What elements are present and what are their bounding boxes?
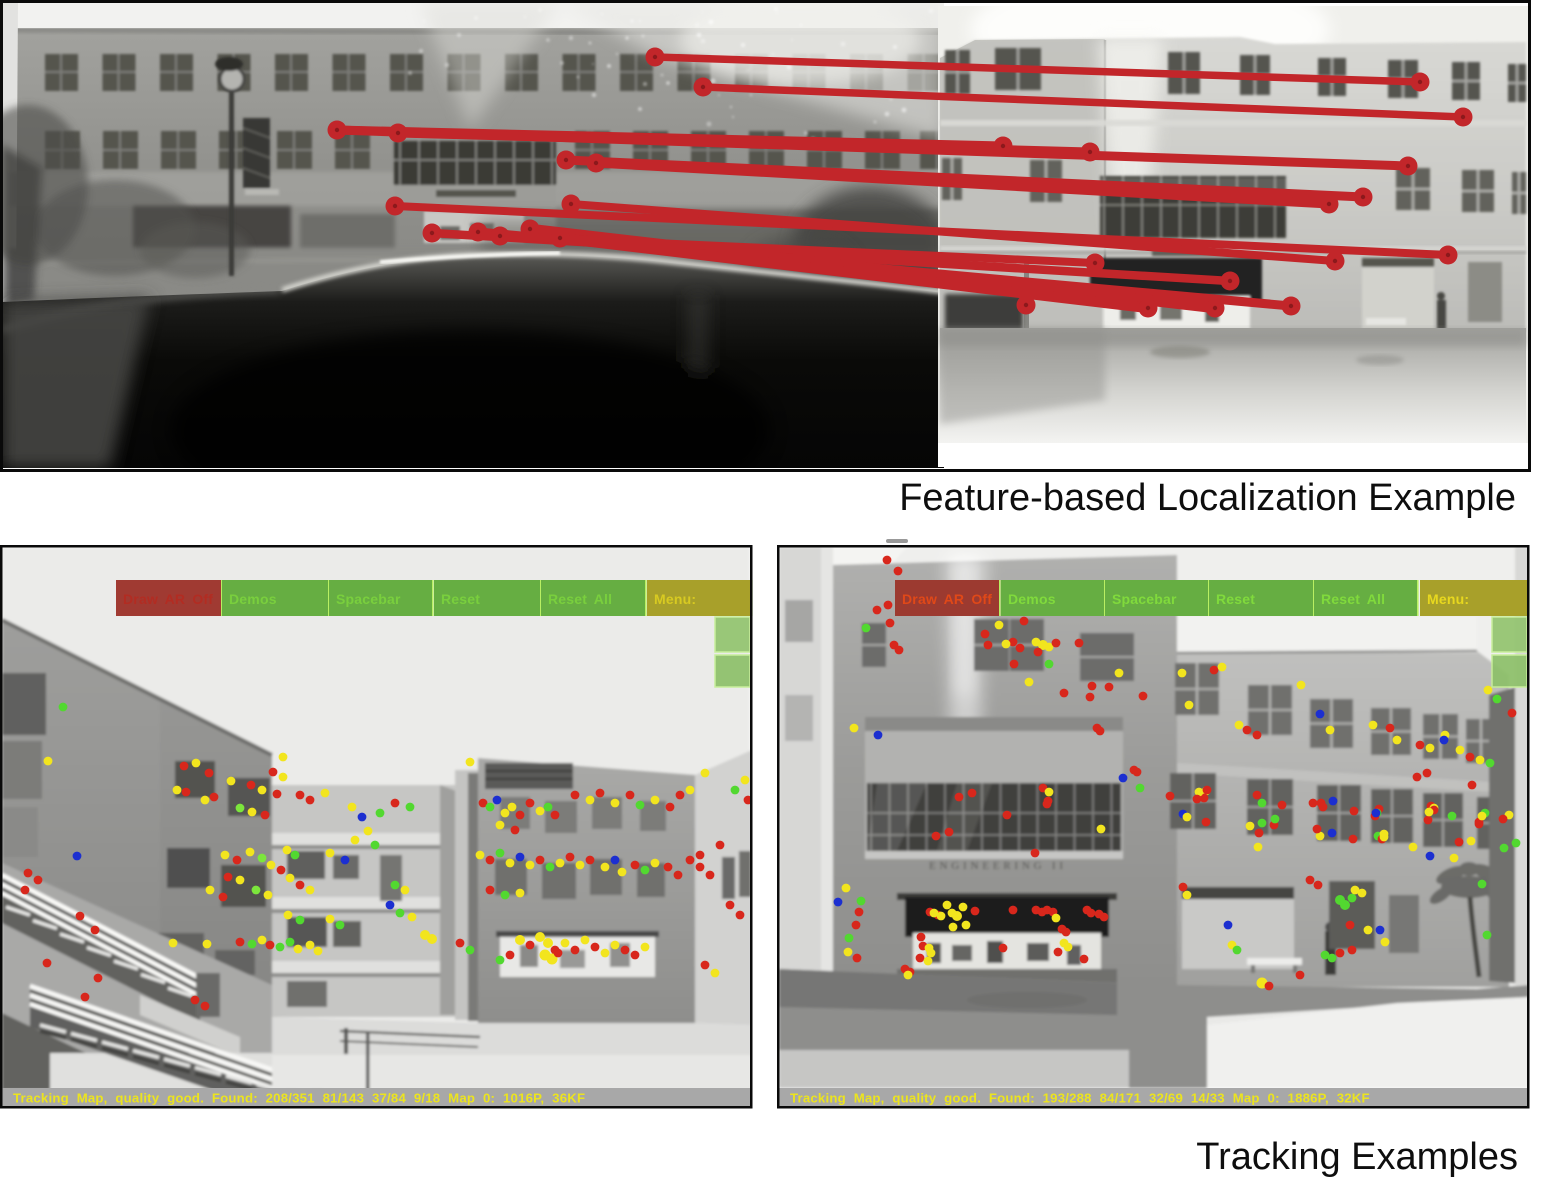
svg-text:Reset All: Reset All <box>548 591 612 607</box>
svg-text:Menu:: Menu: <box>654 591 696 607</box>
svg-text:Reset: Reset <box>1216 591 1255 607</box>
svg-text:Draw AR Off: Draw AR Off <box>902 591 992 607</box>
svg-text:Tracking Map, quality good. Fo: Tracking Map, quality good. Found: 193/2… <box>790 1091 1370 1106</box>
svg-text:Reset: Reset <box>441 591 480 607</box>
svg-text:Demos: Demos <box>229 591 277 607</box>
svg-text:Reset All: Reset All <box>1321 591 1385 607</box>
svg-text:Demos: Demos <box>1008 591 1056 607</box>
svg-text:Spacebar: Spacebar <box>336 591 401 607</box>
svg-text:ENGINEERING II: ENGINEERING II <box>929 860 1065 872</box>
svg-text:Draw AR Off: Draw AR Off <box>123 591 213 607</box>
svg-text:Spacebar: Spacebar <box>1112 591 1177 607</box>
svg-text:Tracking Map, quality good. Fo: Tracking Map, quality good. Found: 208/3… <box>13 1091 585 1106</box>
svg-text:Menu:: Menu: <box>1427 591 1469 607</box>
